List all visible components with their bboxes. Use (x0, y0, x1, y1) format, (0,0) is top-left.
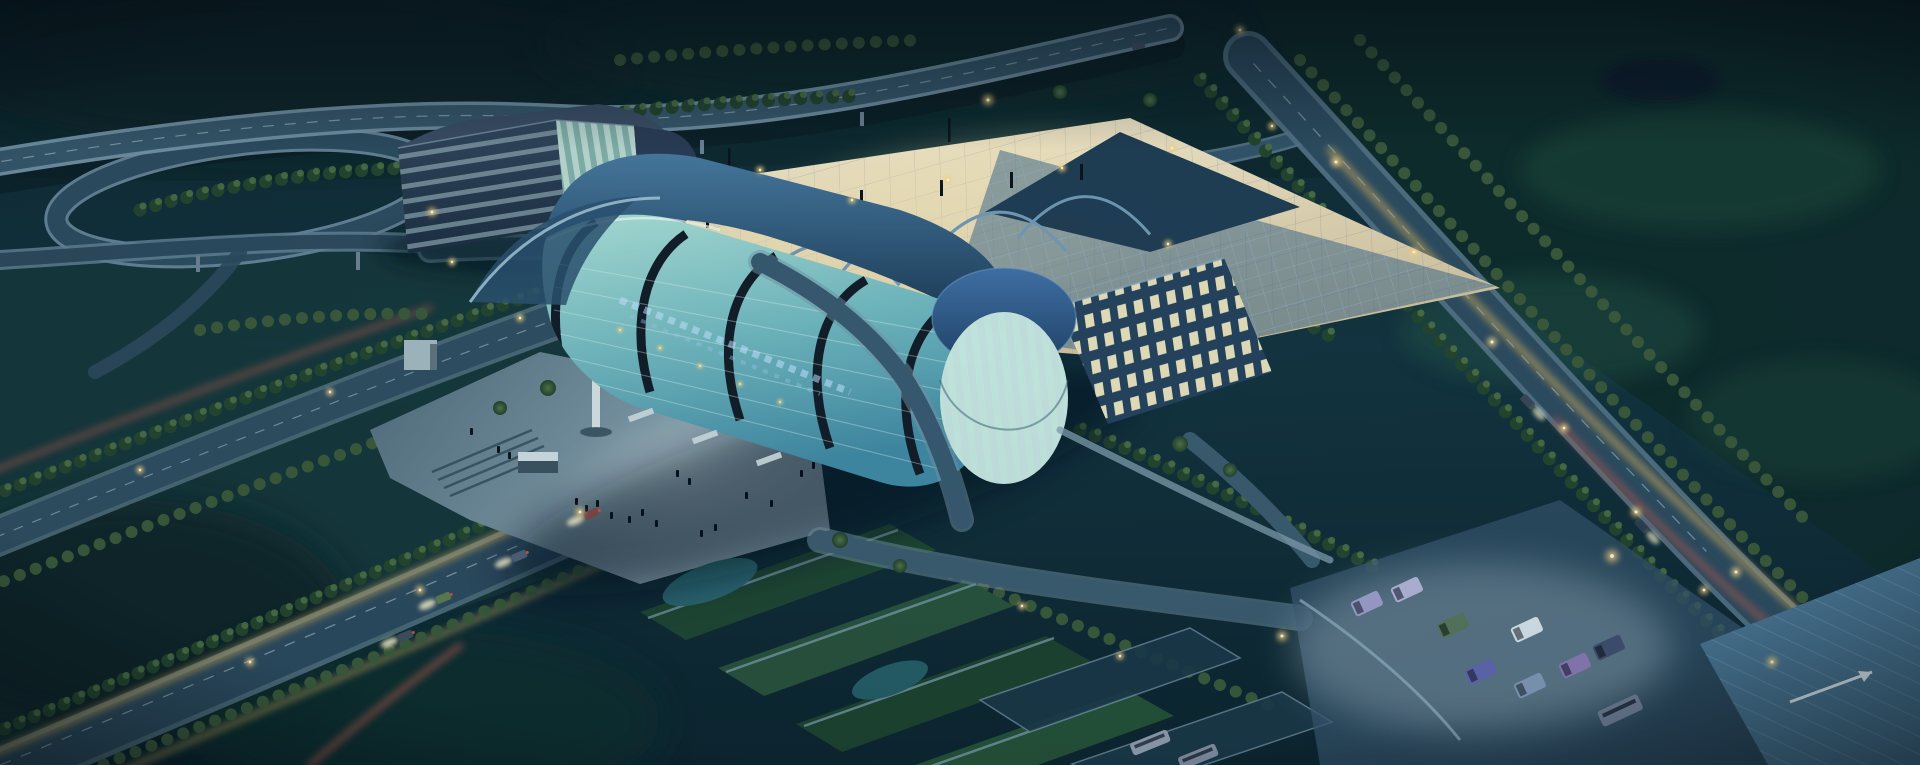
night-aerial-scene (0, 0, 1920, 765)
architectural-rendering (0, 0, 1920, 765)
vignette (0, 0, 1920, 765)
